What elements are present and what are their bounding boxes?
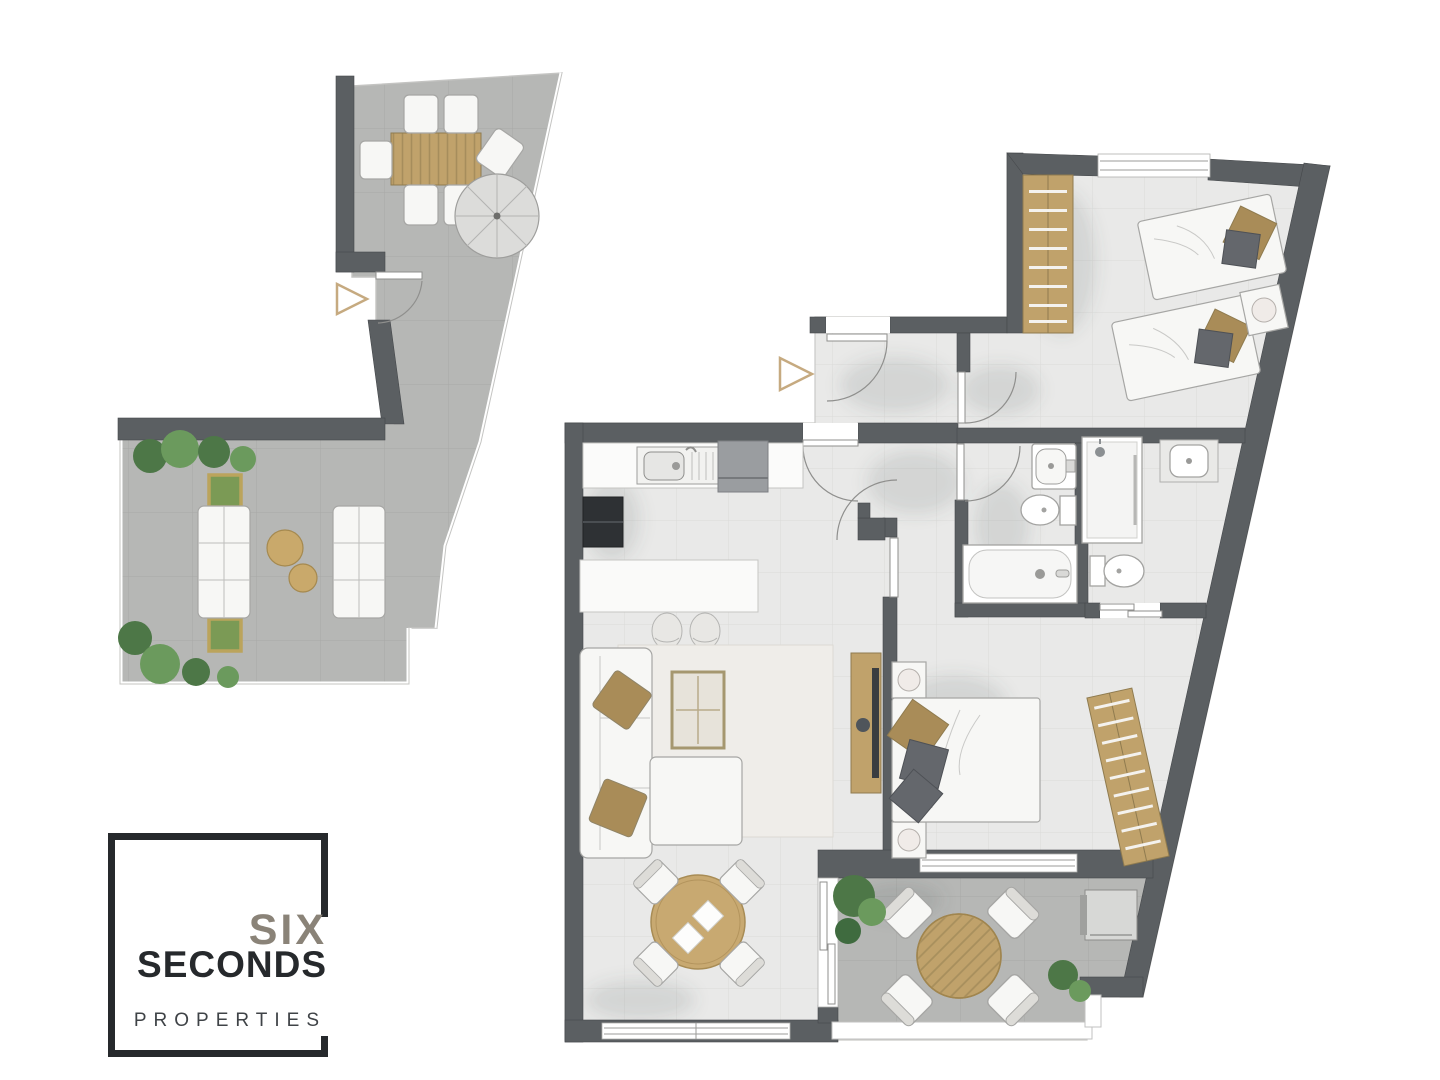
window-twin-bedroom (1098, 154, 1210, 177)
tv (872, 668, 879, 778)
ensuite-washbasin (1160, 440, 1218, 482)
ensuite-toilet (1090, 555, 1144, 587)
kitchen-sink (637, 447, 723, 484)
kitchen-appliance (718, 441, 768, 492)
logo-properties: PROPERTIES (134, 1010, 326, 1031)
sliding-door-ensuite (1100, 603, 1162, 618)
brand-logo: SIX SECONDS PROPERTIES (108, 833, 328, 1057)
bathtub (963, 545, 1077, 603)
entrance-arrow-main-unit (780, 358, 812, 390)
logo-seconds: SECONDS (137, 944, 327, 985)
outdoor-sofa-left (198, 506, 250, 618)
coffee-table (672, 672, 724, 748)
twin-wardrobe (1023, 175, 1073, 333)
kitchen-island (580, 560, 758, 612)
master-nightstand-bottom (892, 822, 926, 858)
main-unit (565, 153, 1330, 1042)
tv-sideboard (851, 653, 881, 793)
floor-plan-drawing: SIX SECONDS PROPERTIES (0, 0, 1440, 1080)
left-terrace-unit (118, 73, 562, 688)
ac-unit (1080, 890, 1137, 940)
twin-nightstand (1240, 284, 1288, 335)
double-bed (887, 698, 1040, 823)
window-dining (602, 1023, 790, 1039)
shower (1082, 437, 1142, 543)
parasol-umbrella (455, 174, 539, 258)
master-nightstand-top (892, 662, 926, 698)
entrance-arrow-left-unit (337, 284, 367, 314)
bathroom-toilet (1021, 495, 1076, 525)
oven-column (583, 497, 623, 547)
window-master-bedroom (920, 854, 1077, 872)
outdoor-sofa-right (333, 506, 385, 618)
floor-plan-page: SIX SECONDS PROPERTIES (0, 0, 1440, 1080)
outdoor-dining-table (391, 133, 481, 185)
bathroom-washbasin (1032, 444, 1076, 489)
